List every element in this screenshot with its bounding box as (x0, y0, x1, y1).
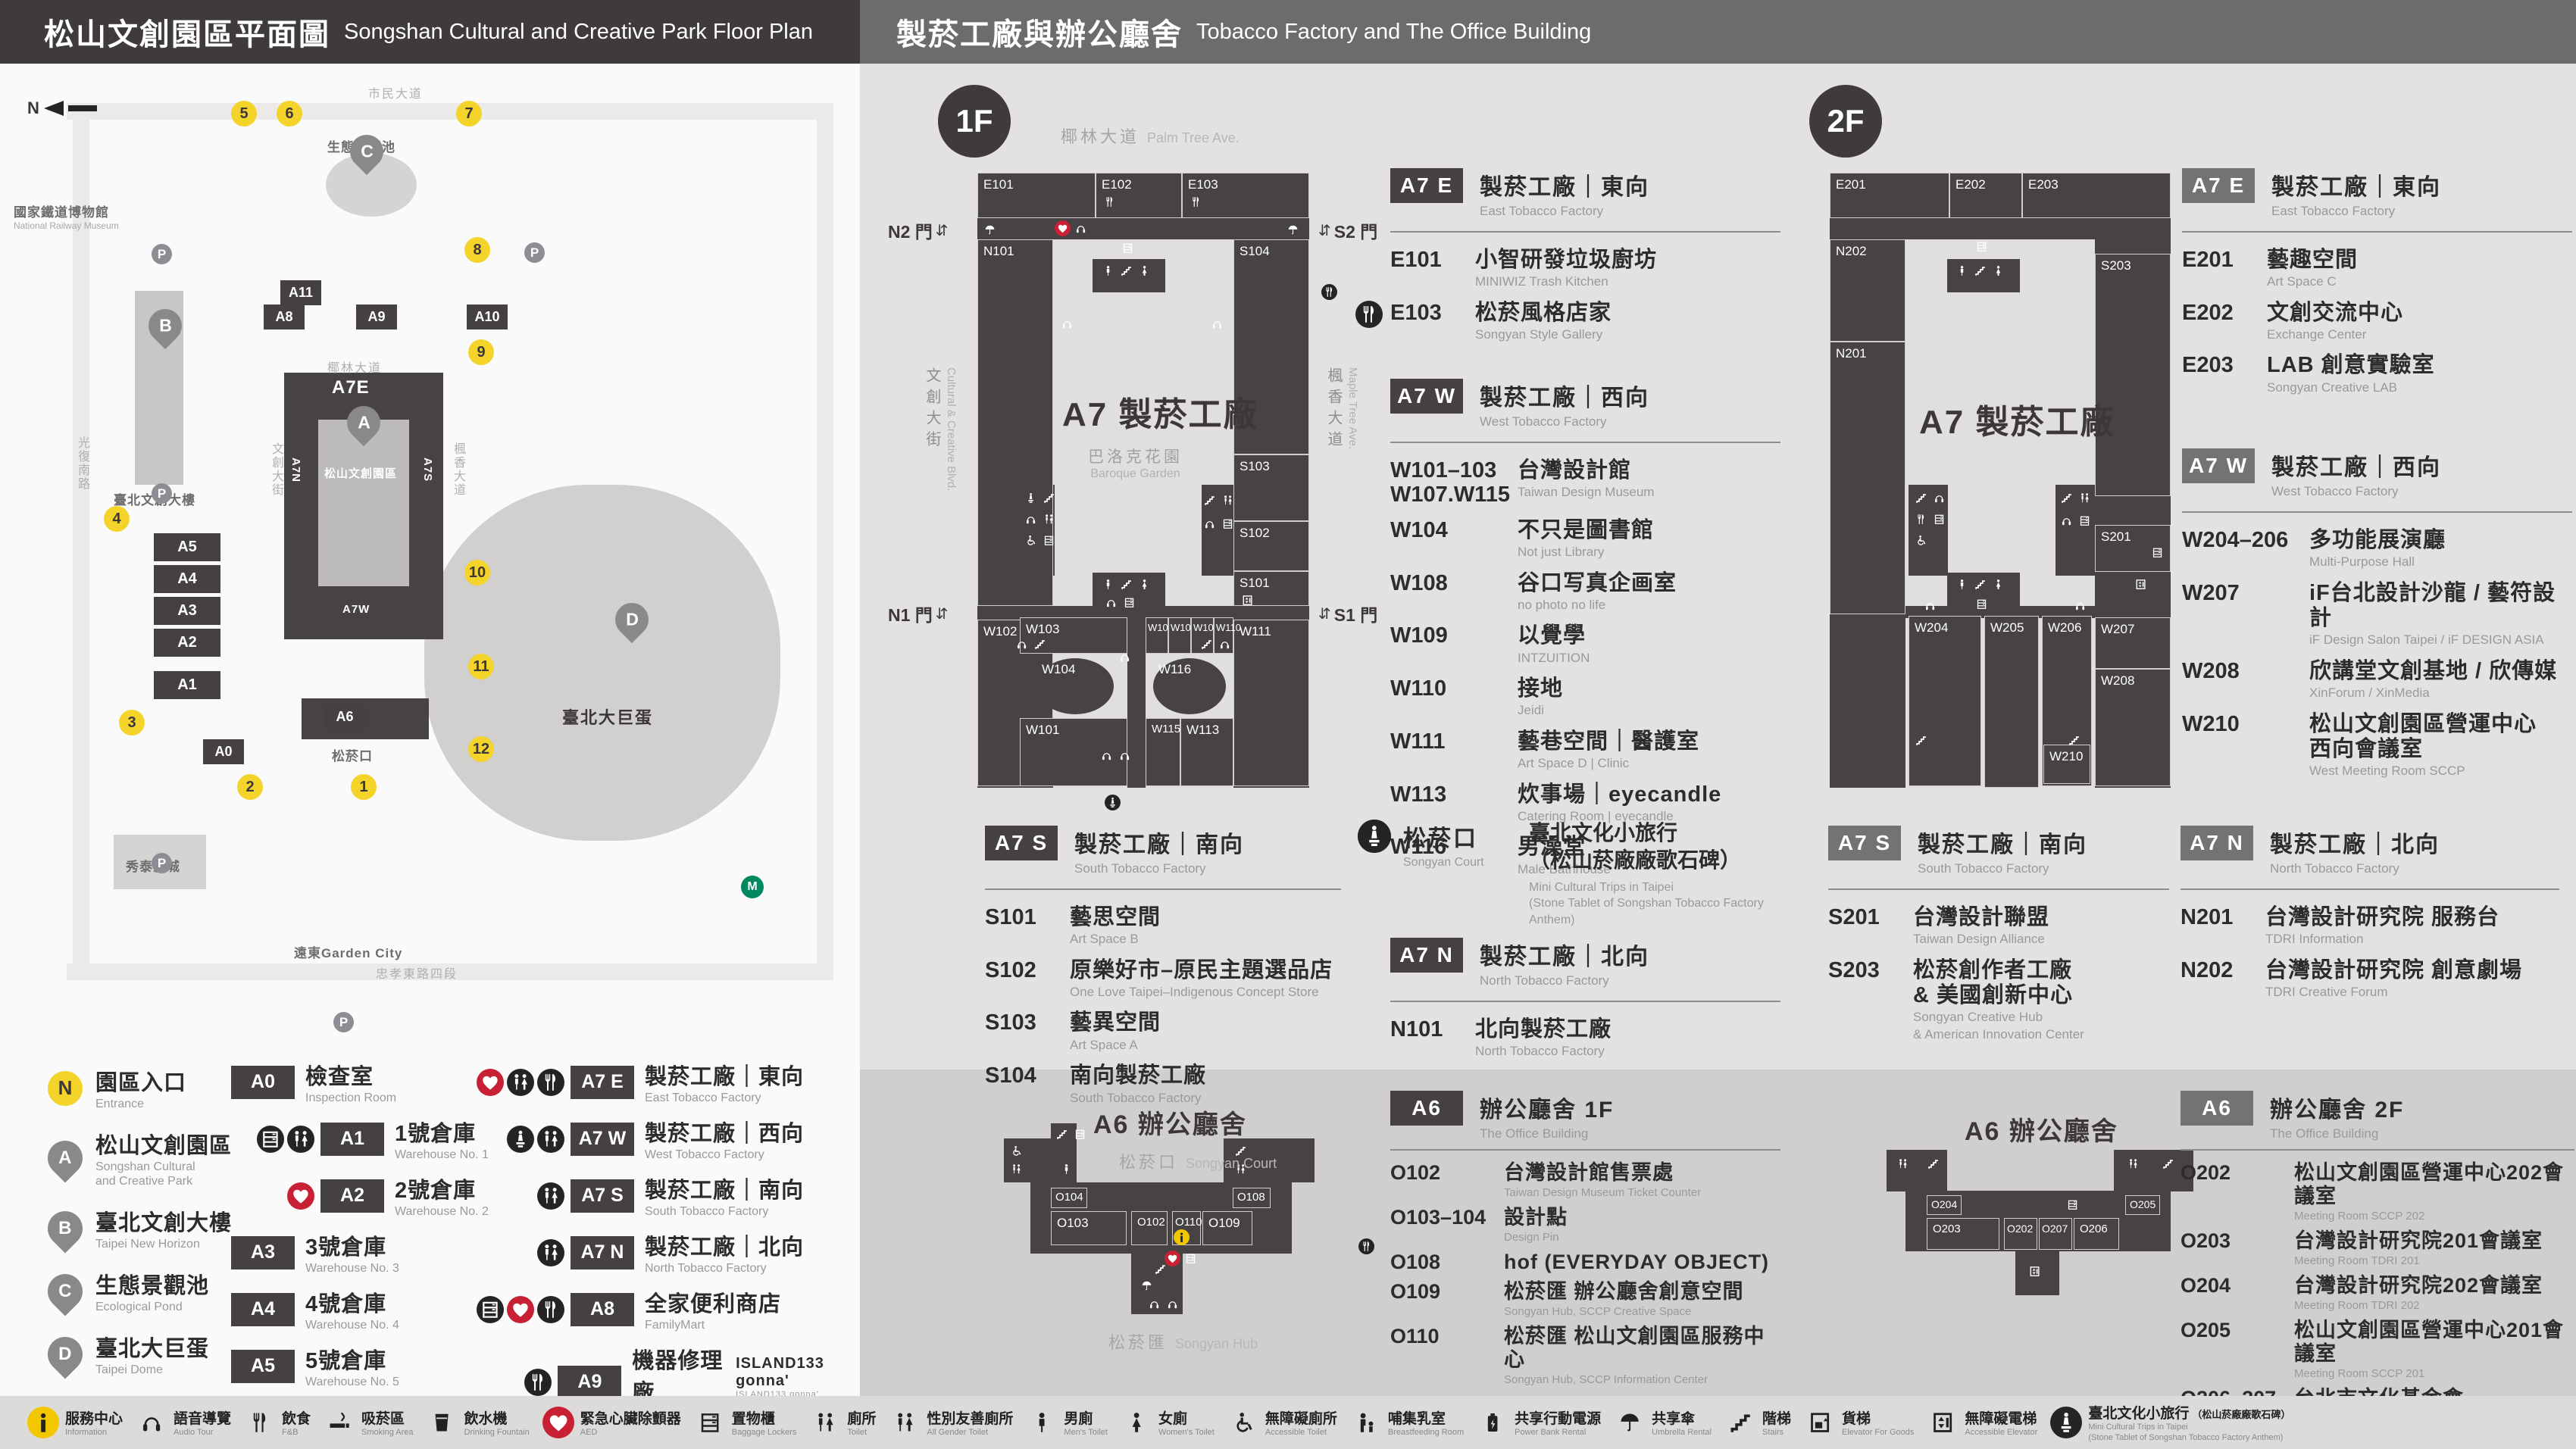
floor-plan-poster: 松山文創園區平面圖 Songshan Cultural and Creative… (0, 0, 2576, 1449)
dress-w-icon (1990, 576, 2006, 592)
parking-icon: P (152, 244, 172, 264)
room-list-item: O109 松菸匯 辦公廳舍創意空間Songyan Hub, SCCP Creat… (1390, 1280, 1780, 1319)
section-badge: A7 W (2182, 448, 2255, 483)
facility-legend-bar: 服務中心 Information 語音導覽 Audio Tour 飲食 F&B (0, 1396, 2576, 1449)
map-label: A6 辦公廳舍 (1965, 1110, 2118, 1148)
road-east (817, 103, 833, 980)
map-icon-cluster (1054, 1126, 1088, 1142)
map-icon-cluster (1117, 649, 1133, 665)
gate-label: ⇵S2 門 (1318, 217, 1377, 243)
map-room: O109 (1202, 1211, 1252, 1245)
court-title-zh2: （松山菸廠廠歌石碑） (1529, 847, 1786, 874)
map-room: O202 (2004, 1218, 2037, 1250)
locker-icon (257, 1126, 284, 1153)
stairs-w-icon (1054, 1126, 1070, 1142)
map-icon-cluster (1895, 1156, 1911, 1172)
fnb-w-icon (1102, 194, 1118, 210)
stairs-w-icon (1972, 576, 1988, 592)
map-icon-cluster (1358, 1238, 1374, 1254)
room-list-item: W109 以覺學INTZUITION (1390, 623, 1780, 666)
fnb-icon (1358, 1238, 1374, 1254)
aed-icon (507, 1296, 534, 1323)
room-list-item: E201 藝趣空間Art Space C (2182, 248, 2572, 290)
statue-b-icon (1358, 820, 1391, 853)
stairs-w-icon (2059, 490, 2074, 506)
aed-icon (1055, 220, 1071, 236)
dress-w-icon (1136, 263, 1152, 279)
map-room: S203 (2095, 254, 2171, 496)
legend-pin-item: A 松山文創園區Songshan Culturaland Creative Pa… (45, 1128, 232, 1188)
pin-legend-icon: D (40, 1329, 89, 1379)
facility-item: 階梯 Stairs (1724, 1407, 1791, 1438)
pin-legend-icon: C (40, 1266, 89, 1316)
aed-icon (542, 1407, 574, 1438)
room-list-item: W207 iF台北設計沙龍 / 藝符設計iF Design Salon Taip… (2182, 581, 2572, 648)
baby-plain-icon (1350, 1407, 1382, 1438)
map-room: O207 (2039, 1218, 2072, 1250)
map-label: 楓香大道Maple Tree Ave. (1323, 367, 1359, 452)
map-room: W111 (1233, 620, 1309, 786)
park-building-badge: A11 (280, 280, 321, 305)
statue-icon (2050, 1407, 2082, 1438)
aed-icon (287, 1182, 314, 1210)
audio-w-icon (1202, 516, 1218, 532)
room-list-item: S101 藝思空間Art Space B (985, 905, 1341, 948)
facility-item: 緊急心臟除顫器 AED (542, 1407, 681, 1438)
map-icon-cluster (1202, 516, 1236, 532)
map-icon-cluster (2125, 1156, 2141, 1172)
locker-w-icon (2065, 1197, 2080, 1213)
legend-pin-item: C 生態景觀池Ecological Pond (45, 1268, 232, 1314)
stairs-w-icon (2160, 1156, 2176, 1172)
map-label: A7 製菸工廠 (1919, 395, 2115, 443)
section-title-zh: 製菸工廠｜南向 (1918, 826, 2087, 859)
park-building-badge: A2 (154, 629, 220, 657)
audio-w-icon (1014, 636, 1030, 652)
locker-w-icon (1120, 240, 1136, 256)
map-icon-cluster (1059, 316, 1075, 332)
entrance-number-marker: 9 (468, 339, 494, 365)
section-title-zh: 製菸工廠｜東向 (2271, 168, 2441, 201)
toilet-icon (537, 1126, 564, 1153)
umb-w-icon (1139, 1278, 1155, 1294)
section-title-en: West Tobacco Factory (2271, 484, 2441, 499)
map-room: W207 (2095, 617, 2171, 669)
section-a7s-1f: A7 S 製菸工廠｜南向South Tobacco Factory S101 藝… (985, 826, 1341, 1116)
toilet-icon (537, 1182, 564, 1210)
map-icon-cluster (1285, 222, 1301, 238)
room-list-item: W111 藝巷空間｜醫護室Art Space D | Clinic (1390, 729, 1780, 772)
map-icon-cluster (1209, 316, 1225, 332)
section-title-zh: 製菸工廠｜東向 (1480, 168, 1649, 201)
audio-w-icon (1922, 598, 1938, 614)
stairs-w-icon (1118, 576, 1134, 592)
map-label: 巴洛克花園Baroque Garden (1088, 445, 1183, 481)
section-title-zh: 辦公廳舍 1F (1480, 1091, 1614, 1124)
section-title-en: South Tobacco Factory (1074, 861, 1244, 876)
room-list-item: S203 松菸創作者工廠& 美國創新中心Songyan Creative Hub… (1828, 958, 2169, 1042)
map-icon-cluster (1913, 511, 1947, 527)
section-badge: A6 (2181, 1091, 2253, 1126)
park-building-badge: A1 (154, 671, 220, 699)
section-a7s-2f: A7 S 製菸工廠｜南向South Tobacco Factory S201 台… (1828, 826, 2169, 1053)
map-icon-cluster (1922, 598, 1938, 614)
facility-item: 共享傘 Umbrella Rental (1614, 1407, 1712, 1438)
cup-icon (427, 1407, 458, 1438)
audio-w-icon (1117, 748, 1133, 764)
lift-w-icon (2027, 1263, 2043, 1279)
smoke-icon (324, 1407, 355, 1438)
legend-building-item: A3 3號倉庫Warehouse No. 3 (231, 1229, 497, 1276)
room-list-item: E103 松菸風格店家Songyan Style Gallery (1390, 301, 1780, 343)
locker-w-icon (1072, 1126, 1088, 1142)
dress-w-icon (1136, 576, 1152, 592)
map-icon-cluster (1023, 511, 1057, 527)
section-badge: A7 S (985, 826, 1058, 860)
section-title-en: East Tobacco Factory (2271, 204, 2441, 219)
person-w-icon (1954, 263, 1970, 279)
floor2-map: E201E202E203N202N201S203S201W207W208W204… (1822, 148, 2216, 837)
songyan-court-note: 松菸口Songyan Court 臺北文化小旅行 （松山菸廠廠歌石碑） Mini… (1358, 820, 1786, 929)
map-icon-cluster (1058, 1161, 1074, 1177)
facility-item: 飲食 F&B (244, 1407, 311, 1438)
map-room: O102 (1131, 1211, 1168, 1245)
stairs-w-icon (1913, 490, 1929, 506)
facility-item: 臺北文化小旅行（松山菸廠廠歌石碑） Mini Cultural Trips in… (2050, 1402, 2290, 1442)
room-list-item: N202 台灣設計研究院 創意劇場TDRI Creative Forum (2181, 958, 2559, 1001)
park-map-label: A7W (342, 603, 370, 616)
header-left: 松山文創園區平面圖 Songshan Cultural and Creative… (0, 0, 860, 64)
audio-w-icon (1099, 748, 1114, 764)
pin-legend-icon: A (40, 1133, 89, 1182)
statue-w-icon (1023, 490, 1039, 506)
legend-building-item: A7 S 製菸工廠｜南向 South Tobacco Factory (481, 1173, 860, 1219)
park-map-label: 遠東Garden City (294, 942, 402, 961)
room-list-item: O103–104 設計點Design Pin (1390, 1206, 1780, 1244)
toilet-w-icon (1895, 1156, 1911, 1172)
map-icon-cluster (1199, 636, 1233, 652)
room-list-item: W208 欣講堂文創基地 / 欣傳媒XinForum / XinMedia (2182, 659, 2572, 701)
section-title-zh: 製菸工廠｜西向 (1480, 379, 1649, 412)
map-icon-cluster (1954, 576, 2006, 592)
map-room: E101 (977, 173, 1096, 218)
map-room: W116 (1153, 658, 1226, 714)
entrance-number-marker: 1 (351, 774, 377, 800)
entrance-number-marker: 11 (468, 654, 494, 679)
park-map-label: 光復南路 (73, 436, 91, 491)
map-icon-cluster (1913, 490, 1947, 506)
room-list-item: N201 台灣設計研究院 服務台TDRI Information (2181, 905, 2559, 948)
map-icon-cluster (2072, 598, 2088, 614)
floor1-map: E101E102E103N101W102S104S103S102S101W111… (947, 148, 1371, 837)
map-label: 椰林大道Palm Tree Ave. (1061, 123, 1240, 148)
toilet-icon (287, 1126, 314, 1153)
room-list-item: O205 松山文創園區營運中心201會議室Meeting Room SCCP 2… (2181, 1319, 2574, 1381)
park-map-label: 市民大道 (368, 83, 423, 101)
map-icon-cluster (1120, 240, 1136, 256)
locker-w-icon (1974, 239, 1990, 255)
map-room: W205 (1984, 616, 2039, 788)
audio-w-icon (1117, 649, 1133, 665)
stairs-plain-icon (1724, 1407, 1756, 1438)
office-1f-map: O104O103O102O110O109O108 A6 辦公廳舍松菸口Songy… (996, 1079, 1390, 1382)
park-building-badge: A4 (154, 565, 220, 593)
park-building-block (302, 698, 429, 739)
facility-item: 廁所 Toilet (809, 1407, 876, 1438)
map-label: 文創大街Cultural & Creative Blvd. (921, 367, 958, 491)
room-list-item: E202 文創交流中心Exchange Center (2182, 301, 2572, 343)
gate-label: ⇵N1 門 (888, 601, 949, 626)
park-map-label: 椰林大道 (327, 358, 382, 376)
gate-label: ⇵S1 門 (1318, 601, 1377, 626)
audio-w-icon (1165, 1296, 1180, 1312)
section-a7n-2f: A7 N 製菸工廠｜北向North Tobacco Factory N201 台… (2181, 826, 2559, 1010)
stairs-w-icon (1202, 492, 1218, 508)
parking-icon: P (524, 242, 545, 263)
person-plain-icon (1026, 1407, 1058, 1438)
room-list-item: S201 台灣設計聯盟Taiwan Design Alliance (1828, 905, 2169, 948)
toilet-icon (537, 1239, 564, 1266)
locker-icon (477, 1296, 504, 1323)
header-right: 製菸工廠與辦公廳舍 Tobacco Factory and The Office… (860, 0, 2576, 64)
facility-item: 性別友善廁所 All Gender Toilet (889, 1407, 1013, 1438)
room-list-item: O203 台灣設計研究院201會議室Meeting Room TDRI 201 (2181, 1229, 2574, 1268)
entrance-number-marker: 10 (464, 560, 490, 586)
section-title-en: East Tobacco Factory (1480, 204, 1649, 219)
map-icon-cluster (1202, 492, 1236, 508)
room-list-item: S102 原樂好市–原民主題選品店One Love Taipei–Indigen… (985, 958, 1341, 1001)
section-a7w-1f: A7 W 製菸工廠｜西向West Tobacco Factory W101–10… (1390, 379, 1780, 888)
locker-plain-icon (694, 1407, 726, 1438)
legend-pin-item: D 臺北大巨蛋Taipei Dome (45, 1331, 232, 1377)
legend-building-item: A7 N 製菸工廠｜北向 North Tobacco Factory (481, 1229, 860, 1276)
facility-item: 語音導覽 Audio Tour (136, 1407, 231, 1438)
map-icon-cluster (2059, 513, 2093, 529)
parking-icon: P (152, 483, 172, 504)
fnb-icon (524, 1369, 552, 1396)
facility-item: 共享行動電源 Power Bank Rental (1477, 1407, 1601, 1438)
map-icon-cluster (1165, 1251, 1199, 1266)
audio-w-icon (1059, 316, 1075, 332)
map-icon-cluster (2066, 732, 2082, 748)
map-icon-cluster (982, 222, 998, 238)
court-name-zh: 松菸口 (1403, 820, 1517, 853)
fnb-w-icon (1188, 194, 1204, 210)
audio-w-icon (1931, 490, 1947, 506)
room-list-item: W108 谷口写真企画室no photo no life (1390, 571, 1780, 614)
facility-item: 貨梯 Elevator For Goods (1804, 1407, 1914, 1438)
audio-w-icon (1217, 636, 1233, 652)
map-icon-cluster (1023, 532, 1057, 548)
map-icon-cluster (2160, 1156, 2176, 1172)
map-room: E203 (2022, 173, 2171, 218)
audio-w-icon (2059, 513, 2074, 529)
map-icon-cluster (1139, 1278, 1155, 1294)
map-icon-cluster (1105, 795, 1121, 810)
section-title-zh: 製菸工廠｜南向 (1074, 826, 1244, 859)
map-room: O104 (1051, 1188, 1087, 1208)
map-room: E202 (1949, 173, 2022, 218)
map-label: 松菸匯Songyan Hub (1108, 1329, 1258, 1354)
lift-w-icon (2133, 576, 2149, 592)
park-map-label: 臺北大巨蛋 (562, 704, 653, 729)
legend-pin-item: N 園區入口Entrance (45, 1065, 232, 1111)
map-room: S101 (1233, 571, 1309, 606)
park-map-label: A7N (289, 457, 302, 482)
wheelchair-w-icon (1023, 532, 1039, 548)
section-a7w-2f: A7 W 製菸工廠｜西向West Tobacco Factory W204–20… (2182, 448, 2572, 790)
section-a6-1f: A6 辦公廳舍 1FThe Office Building O102 台灣設計館… (1390, 1091, 1780, 1393)
map-room: O205 (2125, 1195, 2160, 1215)
section-title-zh: 製菸工廠｜北向 (1480, 938, 1649, 971)
park-building-badge: A5 (154, 533, 220, 561)
toilet-w-icon (2125, 1156, 2141, 1172)
park-map-label: 松山文創園區 (324, 465, 397, 481)
facility-item: 服務中心 Information (27, 1407, 123, 1438)
section-title-en: West Tobacco Factory (1480, 414, 1649, 429)
fnb-icon (537, 1069, 564, 1096)
audio-w-icon (1023, 511, 1039, 527)
wheelchair-plain-icon (1227, 1407, 1259, 1438)
map-room: W107 (1146, 617, 1168, 654)
map-icon-cluster (1974, 239, 1990, 255)
legend-building-item: A8 全家便利商店 FamilyMart (481, 1286, 860, 1332)
map-icon-cluster (1099, 748, 1133, 764)
map-icon-cluster (2133, 576, 2149, 592)
songyan-court-icon (1358, 820, 1391, 853)
map-room: E201 (1830, 173, 1949, 218)
stairs-w-icon (1152, 1261, 1168, 1277)
map-label: A7 製菸工廠 (1062, 387, 1258, 436)
map-room: O108 (1233, 1188, 1271, 1208)
person-w-icon (1100, 263, 1116, 279)
park-map-label: 楓香大道 (449, 442, 467, 497)
map-room: W113 (1180, 718, 1233, 786)
map-icon-cluster (1174, 1229, 1190, 1245)
road-west (73, 103, 89, 980)
park-map-label: A7E (332, 377, 370, 398)
map-icon-cluster (1008, 1143, 1024, 1159)
power-plain-icon (1477, 1407, 1508, 1438)
legend-building-item: A7 E 製菸工廠｜東向 East Tobacco Factory (481, 1059, 860, 1105)
fnb-plain-icon (244, 1407, 276, 1438)
section-a7e-2f: A7 E 製菸工廠｜東向East Tobacco Factory E201 藝趣… (2182, 168, 2572, 406)
map-icon-cluster (1913, 732, 1929, 748)
room-list-item: O110 松菸匯 松山文創園區服務中心Songyan Hub, SCCP Inf… (1390, 1325, 1780, 1387)
toilet-icon (507, 1069, 534, 1096)
section-badge: A7 N (2181, 826, 2253, 860)
facility-item: 飲水機 Drinking Fountain (427, 1407, 530, 1438)
entrance-legend-icon: N (48, 1071, 83, 1106)
road-north (67, 103, 833, 120)
section-title-en: North Tobacco Factory (1480, 973, 1649, 988)
umb-w-icon (1285, 222, 1301, 238)
room-list-item: E203 LAB 創意實驗室Songyan Creative LAB (2182, 353, 2572, 395)
park-map-label: A7S (421, 457, 434, 482)
entrance-number-marker: 6 (277, 101, 302, 126)
map-icon-cluster (1913, 532, 1929, 548)
map-room: W208 (2095, 669, 2171, 786)
audio-w-icon (1146, 1296, 1162, 1312)
audio-w-icon (1209, 316, 1225, 332)
section-a7e-1f: A7 E 製菸工廠｜東向East Tobacco Factory E101 小智… (1390, 168, 1780, 353)
map-icon-cluster (1103, 595, 1137, 611)
map-icon-cluster (1925, 1156, 1941, 1172)
park-map-label: 松菸口 (332, 745, 373, 764)
section-title-zh: 辦公廳舍 2F (2270, 1091, 2404, 1124)
gate-label: ⇵N2 門 (888, 217, 949, 243)
map-icon-cluster (1974, 596, 1990, 612)
map-icon-cluster (2027, 1263, 2043, 1279)
map-room: O203 (1927, 1218, 1999, 1250)
section-title-en: South Tobacco Factory (1918, 861, 2087, 876)
section-badge: A6 (1390, 1091, 1463, 1126)
metro-station-icon: M (741, 876, 764, 898)
toilet-w-icon (2077, 490, 2093, 506)
map-room: W204 (1909, 616, 1981, 786)
section-title-en: North Tobacco Factory (2270, 861, 2440, 876)
locker-w-icon (1974, 596, 1990, 612)
map-icon-cluster (1100, 576, 1152, 592)
section-badge: A7 N (1390, 938, 1463, 973)
entrance-number-marker: 4 (104, 506, 130, 532)
room-list-item: W204–206 多功能展演廳Multi-Purpose Hall (2182, 528, 2572, 570)
entrance-number-marker: 8 (464, 237, 490, 263)
map-icon-cluster (1008, 1161, 1024, 1177)
court-title-en2: (Stone Tablet of Songshan Tobacco Factor… (1529, 895, 1786, 928)
audio-icon (136, 1407, 167, 1438)
stairs-w-icon (1972, 263, 1988, 279)
stairs-w-icon (1913, 732, 1929, 748)
wheelchair-w-icon (1913, 532, 1929, 548)
map-room: O204 (1927, 1195, 1962, 1215)
map-room: N202 (1830, 239, 1905, 342)
map-room: N201 (1830, 342, 1905, 614)
locker-w-icon (2077, 513, 2093, 529)
section-badge: A7 E (2182, 168, 2255, 203)
legend: N 園區入口Entrance A 松山文創園區Songshan Cultural… (45, 1059, 860, 1385)
toilet-plain-icon (809, 1407, 841, 1438)
toilet-w-icon (1041, 511, 1057, 527)
map-label: 松菸口Songyan Court (1119, 1149, 1277, 1173)
facility-item: 無障礙電梯 Accessible Elevator (1927, 1407, 2037, 1438)
fnb-icon (1321, 284, 1337, 300)
room-list-item: O202 松山文創園區營運中心202會議室Meeting Room SCCP 2… (2181, 1161, 2574, 1223)
info-icon (1174, 1229, 1190, 1245)
locker-w-icon (1183, 1251, 1199, 1266)
section-badge: A7 W (1390, 379, 1463, 414)
map-icon-cluster (1100, 263, 1152, 279)
facility-item: 女廁 Women's Toilet (1121, 1407, 1215, 1438)
map-icon-cluster (1023, 490, 1057, 506)
lifta-plain-icon (1927, 1407, 1959, 1438)
locker-w-icon (1121, 595, 1137, 611)
factory-title-en: Tobacco Factory and The Office Building (1196, 20, 1591, 45)
factory-title-zh: 製菸工廠與辦公廳舍 (896, 10, 1183, 54)
wheelchair-w-icon (1008, 1143, 1024, 1159)
map-icon-cluster (1055, 220, 1089, 236)
room-list-item: O204 台灣設計研究院202會議室Meeting Room TDRI 202 (2181, 1274, 2574, 1313)
room-list-item: W104 不只是圖書館Not just Library (1390, 518, 1780, 561)
section-badge: A7 S (1828, 826, 1901, 860)
locker-w-icon (1220, 516, 1236, 532)
person-w-icon (1100, 576, 1116, 592)
section-title-en: The Office Building (2270, 1126, 2404, 1141)
map-room: W104 (1036, 658, 1114, 714)
fnb-w-icon (1913, 511, 1929, 527)
section-title-zh: 製菸工廠｜西向 (2271, 448, 2441, 482)
audio-w-icon (2072, 598, 2088, 614)
